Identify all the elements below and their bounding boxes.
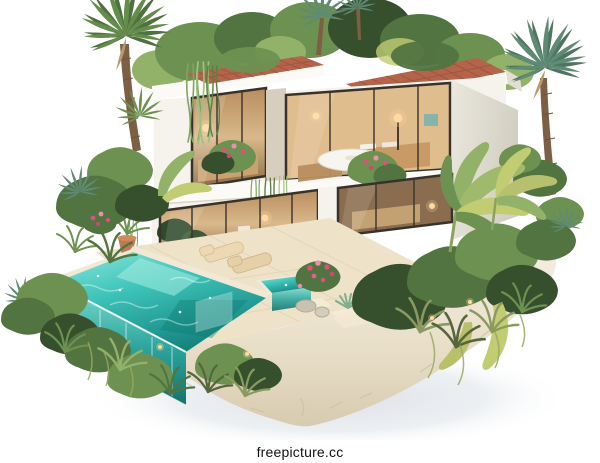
stone xyxy=(315,307,329,317)
villa-render-image: freepicture.cc xyxy=(0,0,600,463)
watermark-text: freepicture.cc xyxy=(257,444,344,460)
watermark-bar: freepicture.cc xyxy=(0,440,600,463)
villa-render-svg xyxy=(0,0,600,463)
stone xyxy=(296,300,316,312)
terrace-recess xyxy=(266,88,286,190)
